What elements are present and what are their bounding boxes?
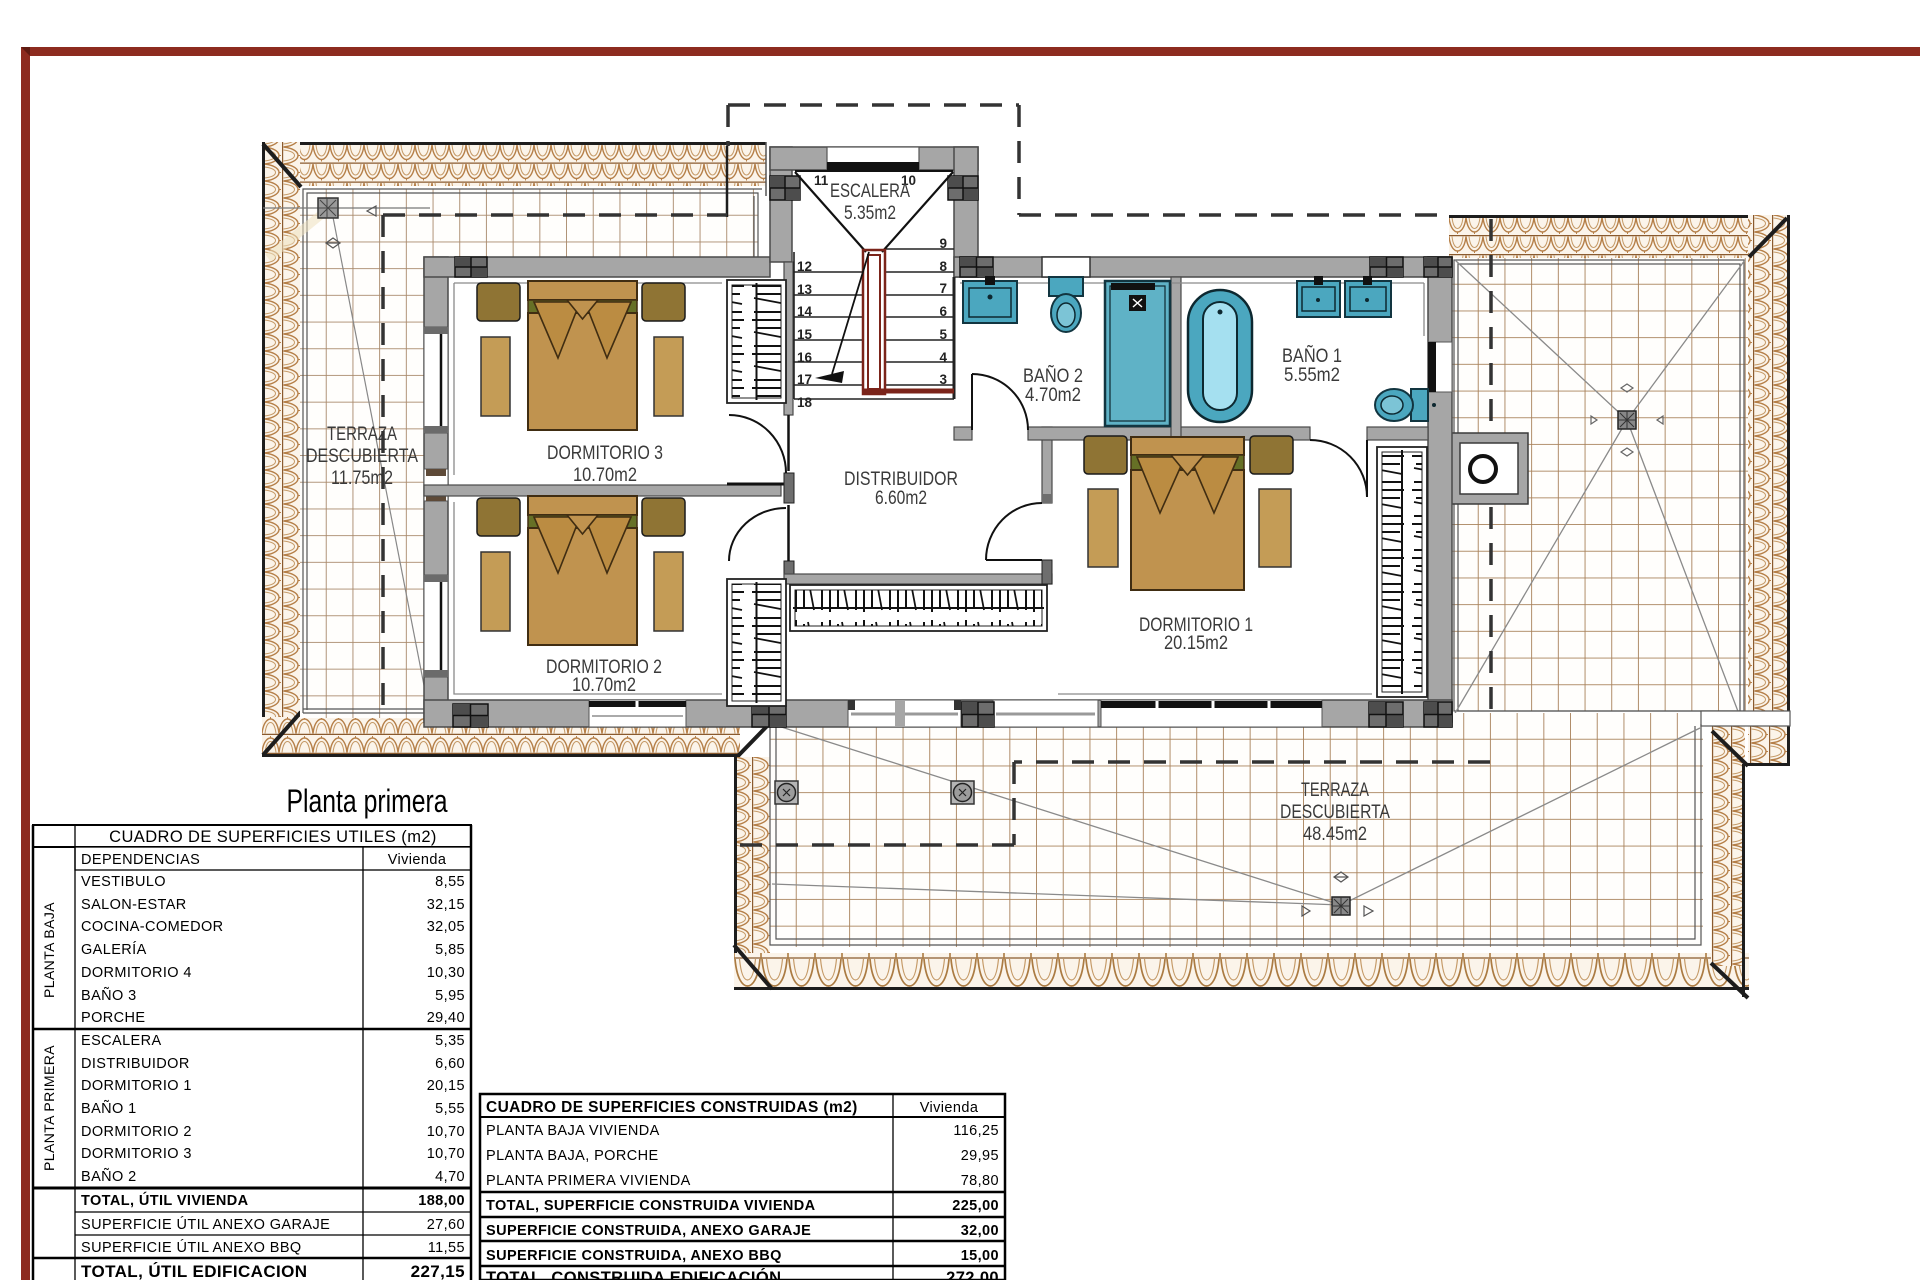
svg-text:BAÑO 2: BAÑO 2 bbox=[81, 1168, 137, 1185]
svg-text:5.35m2: 5.35m2 bbox=[844, 203, 896, 224]
svg-text:DESCUBIERTA: DESCUBIERTA bbox=[306, 446, 418, 467]
svg-text:BAÑO 3: BAÑO 3 bbox=[81, 987, 137, 1004]
svg-text:5,35: 5,35 bbox=[435, 1033, 465, 1049]
svg-text:PLANTA BAJA: PLANTA BAJA bbox=[41, 902, 57, 998]
svg-text:6.60m2: 6.60m2 bbox=[875, 487, 927, 509]
svg-text:PLANTA BAJA, PORCHE: PLANTA BAJA, PORCHE bbox=[486, 1148, 659, 1164]
svg-text:4: 4 bbox=[939, 350, 947, 365]
svg-text:227,15: 227,15 bbox=[411, 1262, 465, 1280]
svg-text:10,30: 10,30 bbox=[427, 965, 465, 981]
svg-text:DORMITORIO 3: DORMITORIO 3 bbox=[547, 442, 663, 464]
svg-text:SUPERFICIE CONSTRUIDA, ANEXO B: SUPERFICIE CONSTRUIDA, ANEXO BBQ bbox=[486, 1248, 782, 1264]
svg-text:10.70m2: 10.70m2 bbox=[573, 464, 637, 486]
svg-text:DORMITORIO 2: DORMITORIO 2 bbox=[81, 1124, 192, 1140]
svg-text:32,15: 32,15 bbox=[427, 897, 465, 913]
svg-text:ESCALERA: ESCALERA bbox=[830, 181, 910, 202]
svg-text:20,15: 20,15 bbox=[427, 1078, 465, 1094]
svg-text:TOTAL, CONSTRUIDA EDIFICACIÓN: TOTAL, CONSTRUIDA EDIFICACIÓN bbox=[486, 1268, 781, 1280]
svg-text:5,85: 5,85 bbox=[435, 942, 465, 958]
svg-text:11: 11 bbox=[814, 173, 829, 188]
svg-text:29,95: 29,95 bbox=[961, 1148, 999, 1164]
svg-text:CUADRO DE SUPERFICIES UTILES (: CUADRO DE SUPERFICIES UTILES (m2) bbox=[109, 828, 437, 846]
svg-text:SALON-ESTAR: SALON-ESTAR bbox=[81, 897, 187, 913]
svg-text:ESCALERA: ESCALERA bbox=[81, 1033, 162, 1049]
svg-text:5,95: 5,95 bbox=[435, 988, 465, 1004]
svg-text:Vivienda: Vivienda bbox=[388, 852, 447, 868]
svg-text:10,70: 10,70 bbox=[427, 1146, 465, 1162]
svg-text:DORMITORIO 1: DORMITORIO 1 bbox=[81, 1078, 192, 1094]
svg-text:3: 3 bbox=[939, 372, 947, 387]
svg-text:TOTAL, ÚTIL EDIFICACION: TOTAL, ÚTIL EDIFICACION bbox=[81, 1262, 307, 1280]
svg-text:4,70: 4,70 bbox=[435, 1169, 465, 1185]
svg-text:4.70m2: 4.70m2 bbox=[1025, 384, 1081, 406]
svg-text:6: 6 bbox=[939, 304, 947, 319]
svg-text:7: 7 bbox=[939, 281, 947, 296]
svg-text:10,70: 10,70 bbox=[427, 1124, 465, 1140]
svg-text:DESCUBIERTA: DESCUBIERTA bbox=[1280, 802, 1390, 823]
svg-text:5,55: 5,55 bbox=[435, 1101, 465, 1117]
svg-text:SUPERFICIE ÚTIL ANEXO BBQ: SUPERFICIE ÚTIL ANEXO BBQ bbox=[81, 1239, 302, 1256]
svg-text:DORMITORIO 3: DORMITORIO 3 bbox=[81, 1146, 192, 1162]
svg-text:27,60: 27,60 bbox=[427, 1217, 465, 1233]
svg-text:15,00: 15,00 bbox=[961, 1248, 999, 1264]
svg-text:6,60: 6,60 bbox=[435, 1056, 465, 1072]
svg-text:16: 16 bbox=[797, 350, 813, 365]
svg-text:PLANTA BAJA VIVIENDA: PLANTA BAJA VIVIENDA bbox=[486, 1123, 660, 1139]
svg-text:8: 8 bbox=[939, 259, 947, 274]
svg-text:DEPENDENCIAS: DEPENDENCIAS bbox=[81, 852, 200, 868]
svg-text:SUPERFICIE CONSTRUIDA, ANEXO G: SUPERFICIE CONSTRUIDA, ANEXO GARAJE bbox=[486, 1223, 811, 1239]
svg-text:PLANTA PRIMERA VIVIENDA: PLANTA PRIMERA VIVIENDA bbox=[486, 1173, 691, 1189]
svg-text:TERRAZA: TERRAZA bbox=[327, 424, 397, 445]
svg-text:272,00: 272,00 bbox=[946, 1269, 999, 1280]
svg-text:32,00: 32,00 bbox=[961, 1223, 999, 1239]
svg-text:15: 15 bbox=[797, 327, 813, 342]
svg-text:PLANTA PRIMERA: PLANTA PRIMERA bbox=[41, 1045, 57, 1171]
svg-text:20.15m2: 20.15m2 bbox=[1164, 632, 1228, 654]
svg-text:78,80: 78,80 bbox=[961, 1173, 999, 1189]
svg-text:188,00: 188,00 bbox=[418, 1193, 465, 1209]
svg-text:DORMITORIO 4: DORMITORIO 4 bbox=[81, 965, 192, 981]
svg-text:10.70m2: 10.70m2 bbox=[572, 674, 636, 696]
svg-text:GALERÍA: GALERÍA bbox=[81, 941, 147, 958]
svg-text:PORCHE: PORCHE bbox=[81, 1010, 145, 1026]
svg-text:11,55: 11,55 bbox=[428, 1240, 465, 1256]
svg-text:SUPERFICIE ÚTIL ANEXO GARAJE: SUPERFICIE ÚTIL ANEXO GARAJE bbox=[81, 1216, 330, 1233]
svg-text:5: 5 bbox=[939, 327, 947, 342]
svg-text:116,25: 116,25 bbox=[953, 1123, 999, 1139]
svg-text:29,40: 29,40 bbox=[427, 1010, 465, 1026]
svg-text:13: 13 bbox=[797, 282, 813, 297]
svg-text:17: 17 bbox=[797, 372, 812, 387]
svg-text:48.45m2: 48.45m2 bbox=[1303, 824, 1367, 845]
svg-text:BAÑO 1: BAÑO 1 bbox=[81, 1100, 137, 1117]
svg-text:32,05: 32,05 bbox=[427, 919, 465, 935]
svg-text:18: 18 bbox=[797, 395, 813, 410]
svg-text:CUADRO DE SUPERFICIES CONSTRUI: CUADRO DE SUPERFICIES CONSTRUIDAS (m2) bbox=[486, 1099, 858, 1116]
svg-text:DISTRIBUIDOR: DISTRIBUIDOR bbox=[81, 1056, 190, 1072]
svg-text:COCINA-COMEDOR: COCINA-COMEDOR bbox=[81, 919, 224, 935]
svg-text:TOTAL, SUPERFICIE CONSTRUIDA V: TOTAL, SUPERFICIE CONSTRUIDA VIVIENDA bbox=[486, 1198, 816, 1214]
svg-text:TOTAL, ÚTIL VIVIENDA: TOTAL, ÚTIL VIVIENDA bbox=[81, 1191, 249, 1209]
svg-text:TERRAZA: TERRAZA bbox=[1301, 780, 1369, 801]
svg-text:Vivienda: Vivienda bbox=[920, 1100, 979, 1116]
svg-text:12: 12 bbox=[797, 259, 812, 274]
svg-text:14: 14 bbox=[797, 304, 813, 319]
svg-text:VESTIBULO: VESTIBULO bbox=[81, 874, 166, 890]
svg-text:9: 9 bbox=[939, 236, 947, 251]
svg-text:Planta primera: Planta primera bbox=[287, 783, 448, 819]
svg-text:8,55: 8,55 bbox=[435, 874, 465, 890]
svg-text:5.55m2: 5.55m2 bbox=[1284, 364, 1340, 386]
svg-text:225,00: 225,00 bbox=[952, 1198, 999, 1214]
